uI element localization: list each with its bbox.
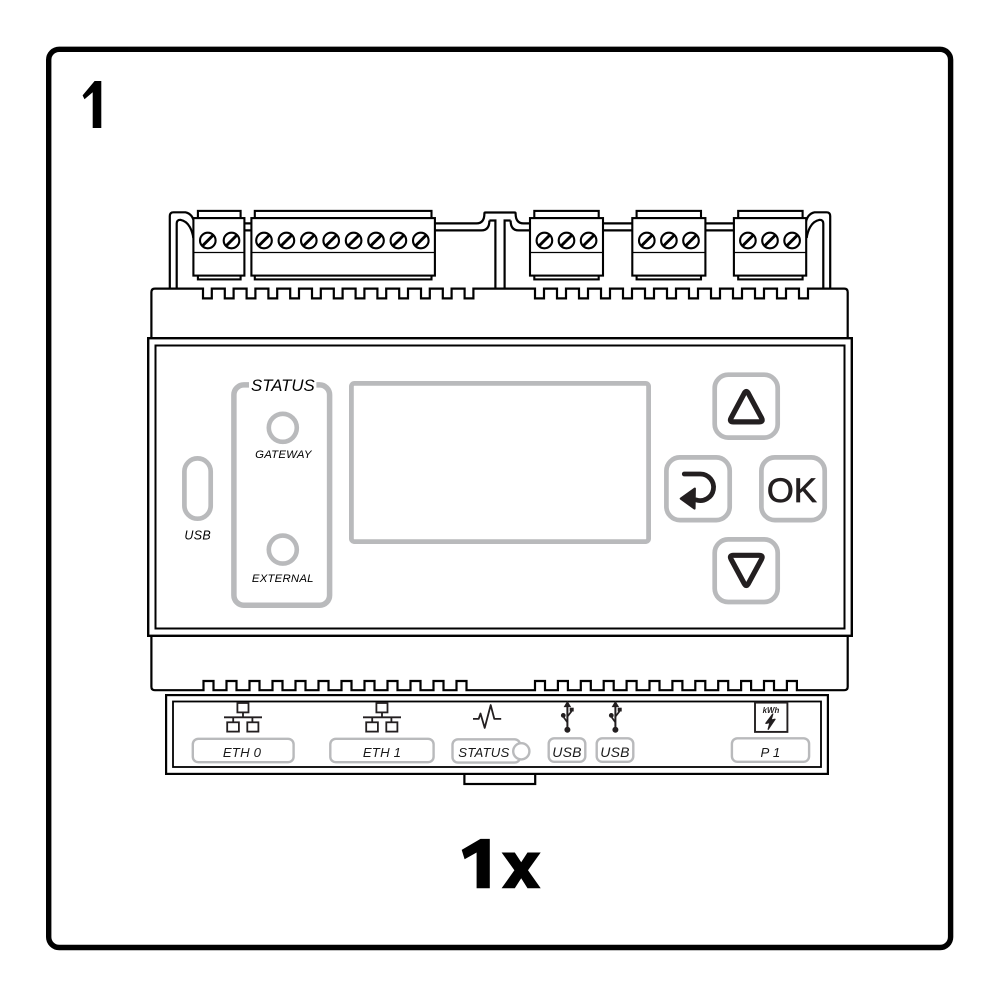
- svg-text:kWh: kWh: [763, 706, 780, 715]
- svg-text:P 1: P 1: [761, 745, 781, 760]
- svg-text:GATEWAY: GATEWAY: [255, 449, 313, 461]
- svg-text:STATUS: STATUS: [458, 745, 509, 760]
- svg-text:USB: USB: [184, 528, 211, 542]
- svg-text:EXTERNAL: EXTERNAL: [252, 573, 314, 585]
- svg-text:ETH 0: ETH 0: [223, 745, 262, 760]
- svg-text:ETH 1: ETH 1: [363, 745, 401, 760]
- svg-text:USB: USB: [552, 744, 581, 760]
- svg-text:USB: USB: [600, 744, 629, 760]
- svg-text:OK: OK: [767, 472, 817, 510]
- svg-text:STATUS: STATUS: [251, 376, 316, 395]
